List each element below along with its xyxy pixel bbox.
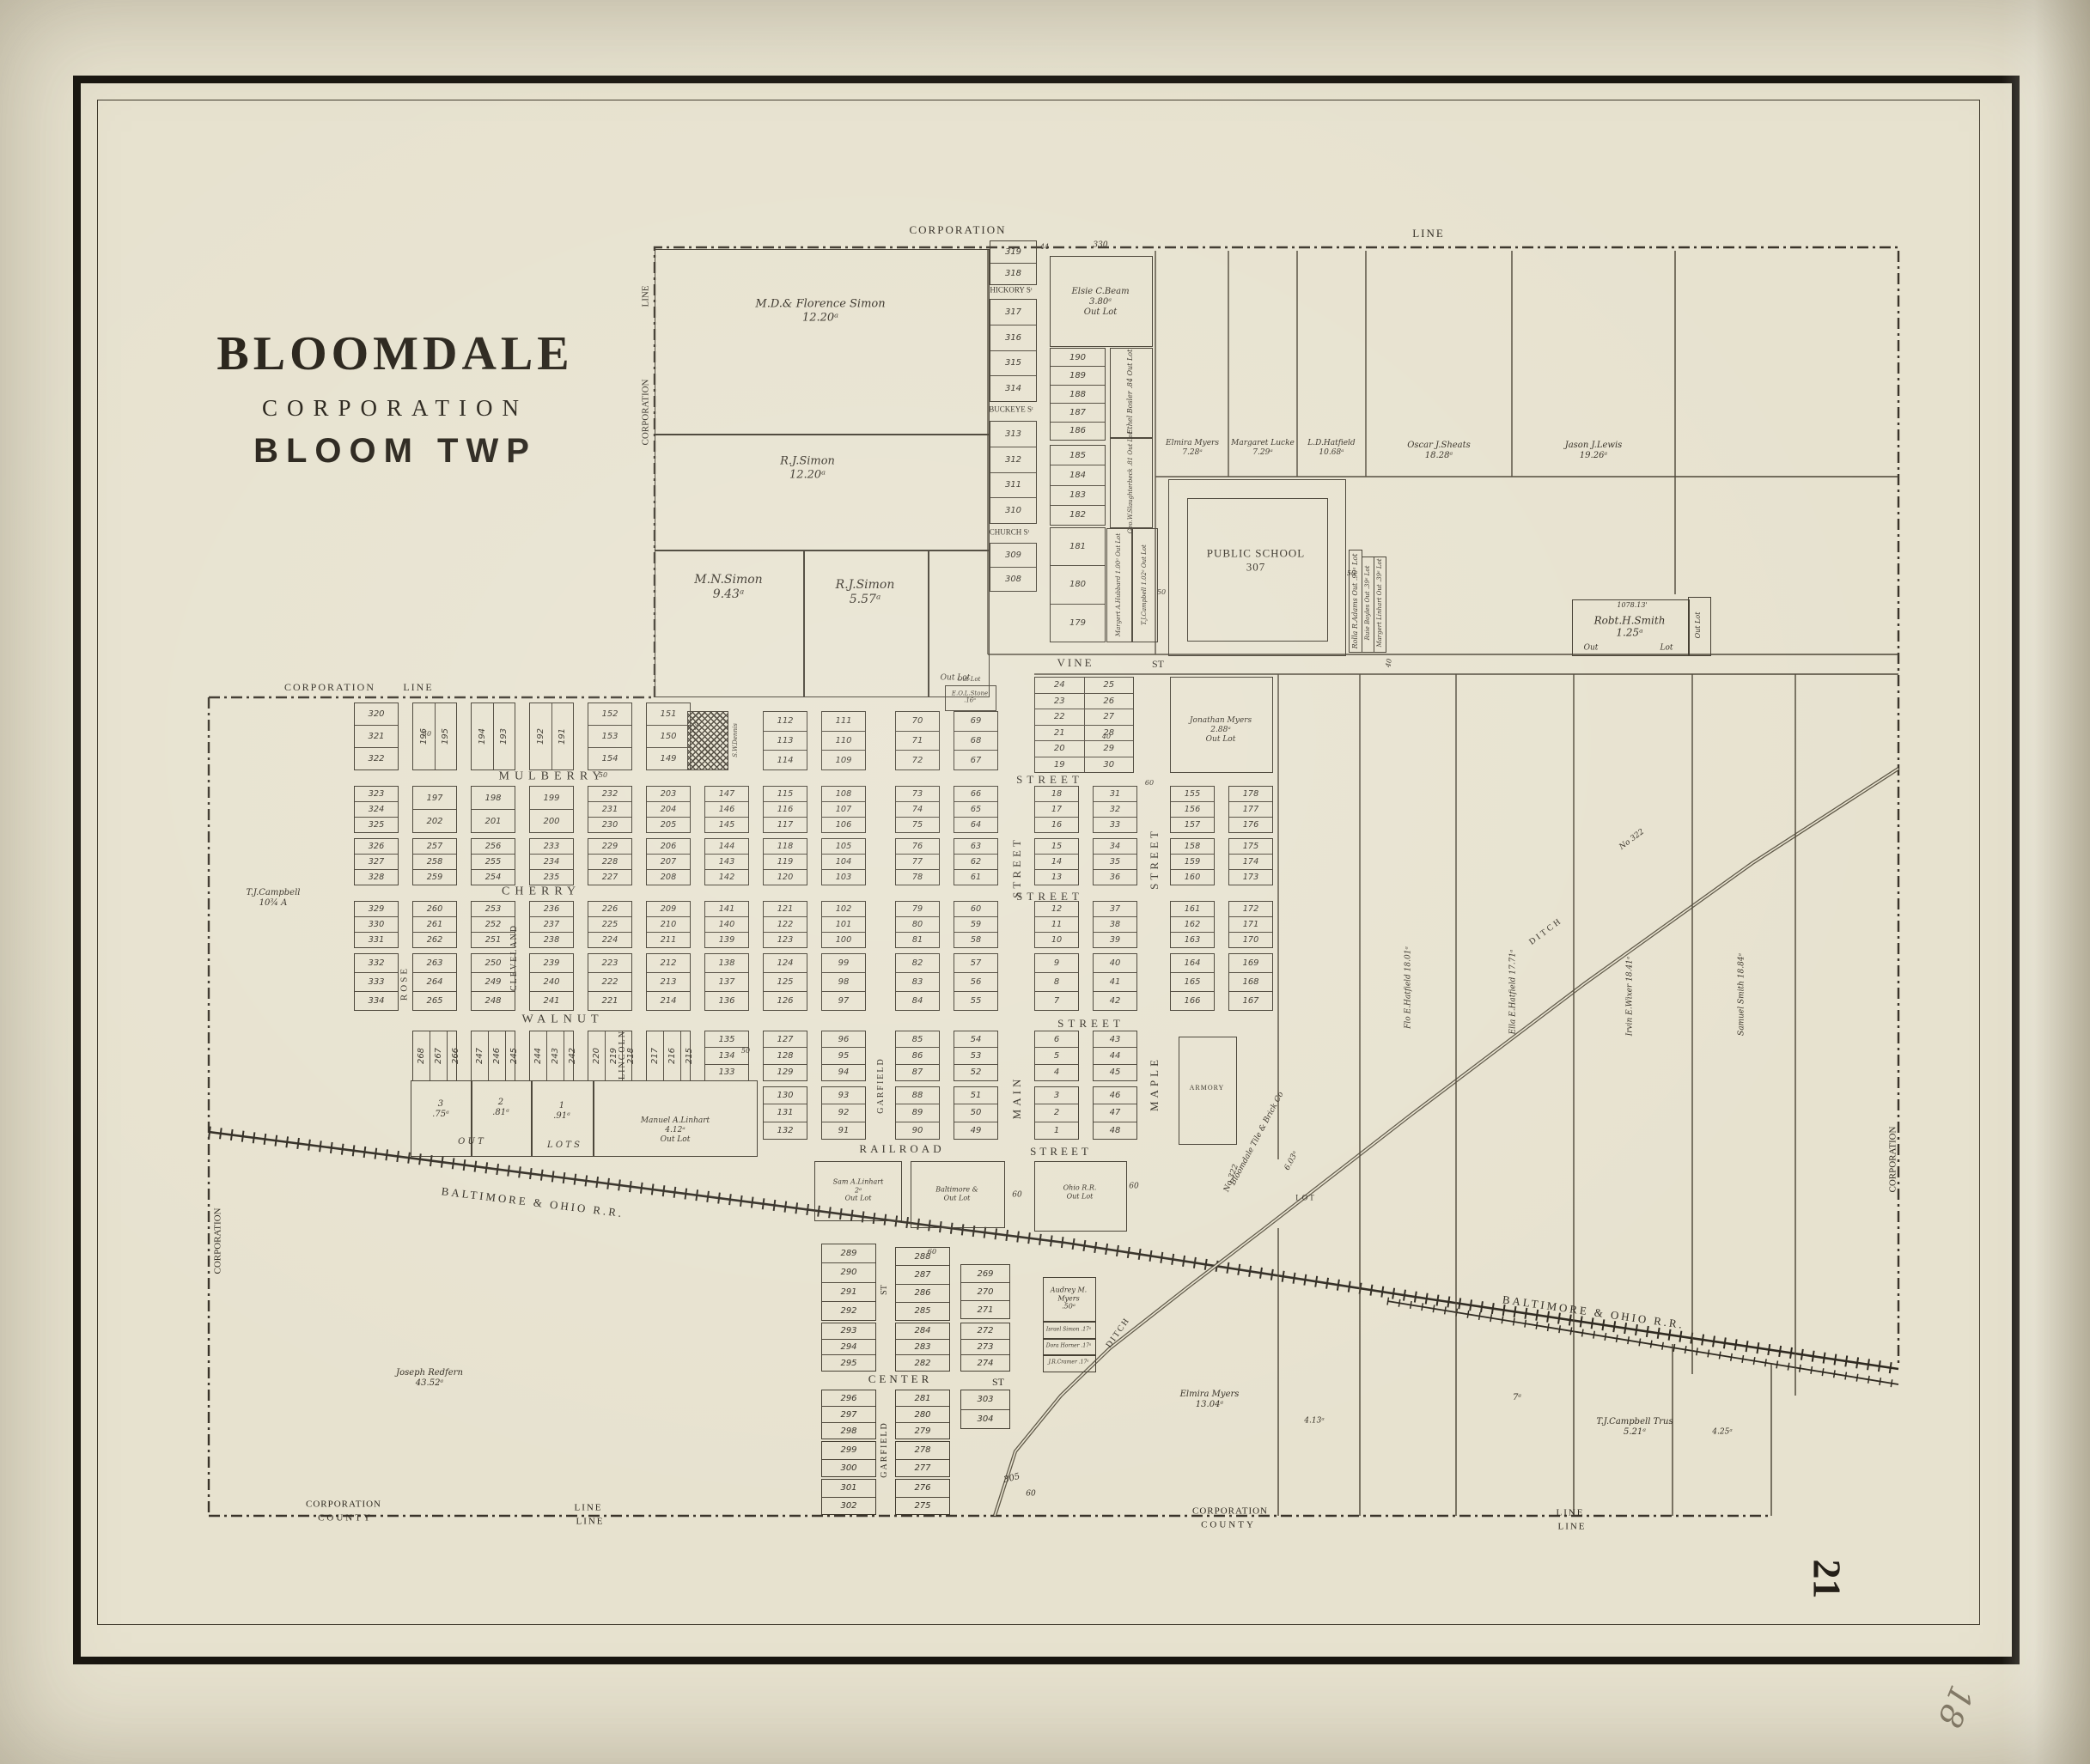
lot: 313 [990,422,1036,447]
lot-block: 233234235 [529,838,574,885]
lot-block: 434445 [1093,1031,1137,1081]
lot-block: 309308 [990,543,1037,592]
parcel-owner: 4.25ᵃ [1712,1428,1732,1438]
street-label-main: STREET [1010,836,1024,898]
lot: 153 [588,725,631,747]
street-label-cleveland: CLEVELAND [509,924,520,991]
lot: 69 [954,712,997,731]
dimension: 50 [423,730,431,739]
map-layer: 3193183173163153143133123113103093081901… [0,0,2090,1764]
lot: 232 [588,787,631,801]
dimension: 50 [741,1047,750,1055]
lot: 294 [822,1339,875,1355]
lot: 103 [822,869,865,885]
lot-block: 181180179 [1050,527,1106,642]
lot: 92 [822,1104,865,1121]
lot: 204 [647,801,690,817]
lot: 71 [896,731,939,751]
boundary-label: LINE [576,1516,604,1527]
boundary-label: LINE [1557,1521,1586,1532]
boundary-label: CORPORATION [909,223,1006,237]
lot: 155 [1171,787,1214,801]
out-lot-label: LOT [1295,1194,1316,1203]
lot: 152 [588,703,631,725]
dimension: 60 [1012,1191,1021,1201]
lot: 211 [647,932,690,947]
lot: 56 [954,972,997,991]
street-label-garfield: GARFIELD [876,1057,887,1113]
armory-label: ARMORY [1190,1084,1225,1092]
lot-block: 209210211 [646,901,691,948]
lot-block: 102101100 [821,901,866,948]
lot: 258 [413,854,456,869]
lot: 293 [822,1323,875,1339]
lot: 143 [705,854,748,869]
lot: 318 [990,263,1036,285]
lot: 126 [764,991,807,1010]
lot-block: 256255254 [471,838,515,885]
lot: 308 [990,567,1036,591]
lot: 220 [588,1031,605,1080]
lot: 264 [413,972,456,991]
lot: 200 [530,809,573,832]
lot: 285 [896,1302,949,1320]
lot-block: 969594 [821,1031,866,1081]
lot: 107 [822,801,865,817]
parcel-owner: T.J.Campbell Trus 5.21ᵃ [1596,1417,1673,1438]
lot-block: 268267266 [412,1031,457,1081]
lot: 235 [530,869,573,885]
lot: 289 [822,1244,875,1262]
lot: 296 [822,1390,875,1406]
lot: 114 [764,750,807,769]
lot-block: 118119120 [763,838,807,885]
lot: 68 [954,731,997,751]
lot: 157 [1171,817,1214,832]
lot-block: 161162163 [1170,901,1215,948]
lot: 24 [1035,678,1084,693]
lot-block: 605958 [954,901,998,948]
lot: 213 [647,972,690,991]
parcel-owner: Elsie C.Beam 3.80ᵃ Out Lot [1071,287,1129,318]
lot: 256 [472,839,515,854]
lot: 240 [530,972,573,991]
lot-block: 263264265 [412,953,457,1011]
lot: 317 [990,300,1036,325]
lot-block: 332333334 [354,953,399,1011]
out-lot-number: 1 .91ᵃ [553,1101,570,1122]
lot-block: 321 [1034,1086,1079,1140]
lot: 1 [1035,1122,1078,1139]
lot: 46 [1094,1087,1136,1104]
parcel-owner: E.O.L.Stone .16ᵃ [952,690,988,705]
lot: 184 [1051,465,1105,484]
lot: 133 [705,1064,748,1080]
lot: 290 [822,1262,875,1281]
lot-block: 108107106 [821,786,866,833]
lot-block: 737475 [895,786,940,833]
lot-block: 206207208 [646,838,691,885]
lot-block: 138137136 [704,953,749,1011]
boundary-label: CORPORATION [640,379,651,445]
lot-block: 158159160 [1170,838,1215,885]
boundary-label: LINE [1556,1507,1584,1518]
lot: 125 [764,972,807,991]
lot: 193 [494,703,515,769]
lot: 23 [1035,693,1084,709]
lot: 212 [647,954,690,972]
lot: 76 [896,839,939,854]
dimension: 1078.13' [1617,601,1647,610]
lot-block: 172171170 [1228,901,1273,948]
lot: 229 [588,839,631,854]
map-subtitle2: BLOOM TWP [155,432,636,471]
lot: 5 [1035,1047,1078,1063]
lot: 302 [822,1497,875,1515]
lot: 102 [822,902,865,916]
lot: 276 [896,1480,949,1497]
lot: 216 [664,1031,680,1080]
lot-block: 464748 [1093,1086,1137,1140]
street-label-railroad: RAILROAD [859,1142,944,1156]
boundary-label: LINE [640,285,651,307]
lot: 298 [822,1422,875,1439]
lot: 325 [355,817,398,832]
lot: 160 [1171,869,1214,885]
lot: 116 [764,801,807,817]
lot: 130 [764,1087,807,1104]
parcel-owner: Elmira Myers 7.28ᵃ [1166,439,1219,458]
boundary-label: CORPORATION [1192,1505,1268,1517]
lot: 131 [764,1104,807,1121]
lot: 316 [990,325,1036,350]
out-lot-label: O U T [458,1137,484,1147]
lot: 312 [990,447,1036,472]
lot: 61 [954,869,997,885]
parcel-owner: T.J.Campbell 1.02ᵃ Out Lot [1141,544,1148,625]
lot: 223 [588,954,631,972]
street-label-main: MAIN [1010,1076,1024,1120]
lot: 26 [1085,693,1134,709]
dimension: 50 [1157,588,1166,597]
lot: 262 [413,932,456,947]
railroad-label: BALTIMORE & OHIO R.R. [1502,1293,1685,1331]
lot: 35 [1094,854,1136,869]
lot-block: 296297298 [821,1390,876,1439]
lot: 319 [990,241,1036,263]
lot: 25 [1085,678,1134,693]
lot: 248 [472,991,515,1010]
lot: 203 [647,787,690,801]
lot: 3 [1035,1087,1078,1104]
lot: 86 [896,1047,939,1063]
parcel-owner: Out Lot [958,676,981,683]
lot-block: 303304 [960,1390,1010,1429]
street-label-rose: ROSE [399,966,410,1001]
lot: 132 [764,1122,807,1139]
lot: 309 [990,544,1036,567]
lot: 64 [954,817,997,832]
lot: 286 [896,1284,949,1302]
parcel-owner: Manuel A.Linhart 4.12ᵃ Out Lot [641,1116,710,1144]
lot: 314 [990,375,1036,401]
lot-block: 111110109 [821,711,866,770]
lot: 251 [472,932,515,947]
lot: 33 [1094,817,1136,832]
lot-block: 212213214 [646,953,691,1011]
lot: 135 [705,1031,748,1047]
boundary-label: COUNTY [318,1512,373,1524]
lot-block: 244243242 [529,1031,574,1081]
lot: 222 [588,972,631,991]
lot: 198 [472,787,515,809]
dimension: 60 [928,1248,936,1256]
lot: 18 [1035,787,1078,801]
boundary-label: LINE [1412,227,1445,240]
lot: 88 [896,1087,939,1104]
lot: 137 [705,972,748,991]
lot-block: 217216215 [646,1031,691,1081]
lot: 129 [764,1064,807,1080]
lot-block: 141140139 [704,901,749,948]
lot-block: 281280279 [895,1390,950,1439]
lot: 246 [489,1031,505,1080]
street-label-maple: MAPLE [1148,1056,1161,1111]
lot: 209 [647,902,690,916]
street-label-garfield: GARFIELD [880,1421,890,1477]
lot: 242 [564,1031,581,1080]
lot-block: 247246245 [471,1031,515,1081]
lot-block: 323324325 [354,786,399,833]
lot: 278 [896,1442,949,1459]
lot-block: 242322212019252627282930 [1034,677,1134,773]
lot: 249 [472,972,515,991]
lot: 174 [1229,854,1272,869]
lot-block: 320321322 [354,703,399,770]
lot: 82 [896,954,939,972]
dimension: 44 [1040,243,1049,252]
dimension: 60 [1129,1183,1138,1192]
lot: 4 [1035,1064,1078,1080]
lot: 49 [954,1122,997,1139]
parcel-owner: Irvin E.Wixer 18.41ᵃ [1626,957,1636,1037]
parcel-owner: Out [1584,644,1599,654]
lot: 170 [1229,932,1272,947]
lot: 171 [1229,916,1272,932]
lot: 323 [355,787,398,801]
parcel-owner: 4.13ᵃ [1304,1417,1324,1426]
boundary-label: LINE [574,1502,602,1513]
lot: 43 [1094,1031,1136,1047]
lot: 98 [822,972,865,991]
lot: 53 [954,1047,997,1063]
lot: 66 [954,787,997,801]
lot-block: 185184183182 [1050,445,1106,526]
boundary-label: COUNTY [1201,1519,1256,1530]
lot: 11 [1035,916,1078,932]
lot: 147 [705,787,748,801]
parcel-owner: Flo E.Hatfield 18.01ᵃ [1405,946,1414,1029]
lot: 177 [1229,801,1272,817]
lot: 161 [1171,902,1214,916]
ditch-label: DITCH [1527,915,1565,947]
parcel-box [655,550,805,697]
lot: 273 [961,1339,1009,1355]
lot: 332 [355,954,398,972]
parcel-owner: Lot [1660,644,1673,654]
lot-block: 999897 [821,953,866,1011]
parcel-owner: M.N.Simon 9.43ᵃ [694,573,762,602]
parcel-owner: Elmira Myers 13.04ᵃ [1180,1390,1240,1410]
street-label-garfield: ST [880,1285,890,1295]
lot-block: 858687 [895,1031,940,1081]
lot: 99 [822,954,865,972]
lot-block: 326327328 [354,838,399,885]
lot: 297 [822,1406,875,1422]
lot: 14 [1035,854,1078,869]
lot: 288 [896,1248,949,1265]
lot-block: 269270271 [960,1264,1010,1319]
lot: 17 [1035,801,1078,817]
lot: 334 [355,991,398,1010]
lot-block: 192191 [529,703,574,770]
lot-block: 654 [1034,1031,1079,1081]
dimension: 40 [1102,733,1111,741]
lot: 175 [1229,839,1272,854]
lot: 159 [1171,854,1214,869]
lot: 221 [588,991,631,1010]
street-label: STREET [1016,773,1083,787]
parcel-owner: R.J.Simon 5.57ᵃ [836,578,895,607]
street-label-vine: ST [1152,658,1164,670]
lot: 197 [413,787,456,809]
lot: 50 [954,1104,997,1121]
parcel-owner: Israel Simon .17ᵃ [1046,1326,1091,1332]
lot: 164 [1171,954,1214,972]
lot: 75 [896,817,939,832]
lot-block: 175174173 [1228,838,1273,885]
lot: 327 [355,854,398,869]
lot: 62 [954,854,997,869]
lot: 73 [896,787,939,801]
lot: 233 [530,839,573,854]
lot: 113 [764,731,807,751]
lot: 265 [413,991,456,1010]
lot-block: 329330331 [354,901,399,948]
lot: 95 [822,1047,865,1063]
lot: 162 [1171,916,1214,932]
lot: 252 [472,916,515,932]
lot: 304 [961,1409,1009,1429]
ditch-label: No 322 [1618,828,1646,853]
lot: 217 [647,1031,663,1080]
lot: 79 [896,902,939,916]
lot: 136 [705,991,748,1010]
lot-block: 223222221 [588,953,632,1011]
lot: 299 [822,1442,875,1459]
lot: 150 [647,725,690,747]
out-lot-label: L O T S [547,1141,580,1151]
lot: 57 [954,954,997,972]
lot-block: 289290291292 [821,1244,876,1321]
lot-block: 121110 [1034,901,1079,948]
lot: 121 [764,902,807,916]
lot-block: 196195 [412,703,457,770]
lot: 331 [355,932,398,947]
parcel-owner: Out Lot [1694,612,1703,639]
street-label-walnut: WALNUT [521,1013,603,1028]
lot: 280 [896,1406,949,1422]
lot: 94 [822,1064,865,1080]
lot: 78 [896,869,939,885]
lot: 37 [1094,902,1136,916]
lot: 58 [954,932,997,947]
out-lot-number: 2 .81ᵃ [492,1098,509,1118]
boundary-label: CORPORATION [212,1207,223,1274]
map-subtitle: CORPORATION [155,395,636,422]
parcel-owner: Ella E.Hatfield 17.71ᵃ [1509,950,1519,1035]
parcel-owner: Ethel Bosler .84 Out Lot [1126,350,1135,435]
boundary-label: CORPORATION [1887,1126,1898,1192]
lot-block: 636261 [954,838,998,885]
lot: 80 [896,916,939,932]
lot: 111 [822,712,865,731]
lot: 263 [413,954,456,972]
lot-block: 939291 [821,1086,866,1140]
parcel-owner: Jason J.Lewis 19.26ᵃ [1565,441,1623,461]
lot-block: 105104103 [821,838,866,885]
parcel-owner: Margert A.Hubbard 1.00ᵃ Out Lot [1115,533,1122,636]
lot-block: 284283282 [895,1323,950,1372]
street-label: STREET [1016,890,1083,903]
lot: 109 [822,750,865,769]
lot: 110 [822,731,865,751]
lot: 310 [990,497,1036,523]
lot: 238 [530,932,573,947]
street-label-mulberry: MULBERRY [498,770,606,785]
lot-block: 151413 [1034,838,1079,885]
street-label-hickory: HICKORY Sᵗ [990,286,1032,295]
lot: 180 [1051,565,1105,603]
lot-block: 798081 [895,901,940,948]
lot: 188 [1051,385,1105,403]
ditch-label: DITCH [1104,1316,1132,1350]
parcel-owner: 6.03ᵃ [1283,1150,1301,1172]
lot: 27 [1085,709,1134,725]
lot: 227 [588,869,631,885]
lot-block: 155156157 [1170,786,1215,833]
lot-block: 343536 [1093,838,1137,885]
lot: 210 [647,916,690,932]
lot-block: 696867 [954,711,998,770]
parcel-owner: Baltimore & Out Lot [935,1185,978,1201]
lot: 124 [764,954,807,972]
parcel-owner: J.R.Cramer .17ᵃ [1048,1359,1088,1365]
lot: 112 [764,712,807,731]
lot: 65 [954,801,997,817]
lot: 13 [1035,869,1078,885]
lot-block: 707172 [895,711,940,770]
lot: 21 [1035,725,1084,741]
lot: 101 [822,916,865,932]
lot: 291 [822,1282,875,1301]
lot: 81 [896,932,939,947]
lot-block: 144143142 [704,838,749,885]
lot: 181 [1051,528,1105,565]
public-school-label: PUBLIC SCHOOL 307 [1207,546,1306,573]
lot: 257 [413,839,456,854]
lot: 295 [822,1354,875,1371]
